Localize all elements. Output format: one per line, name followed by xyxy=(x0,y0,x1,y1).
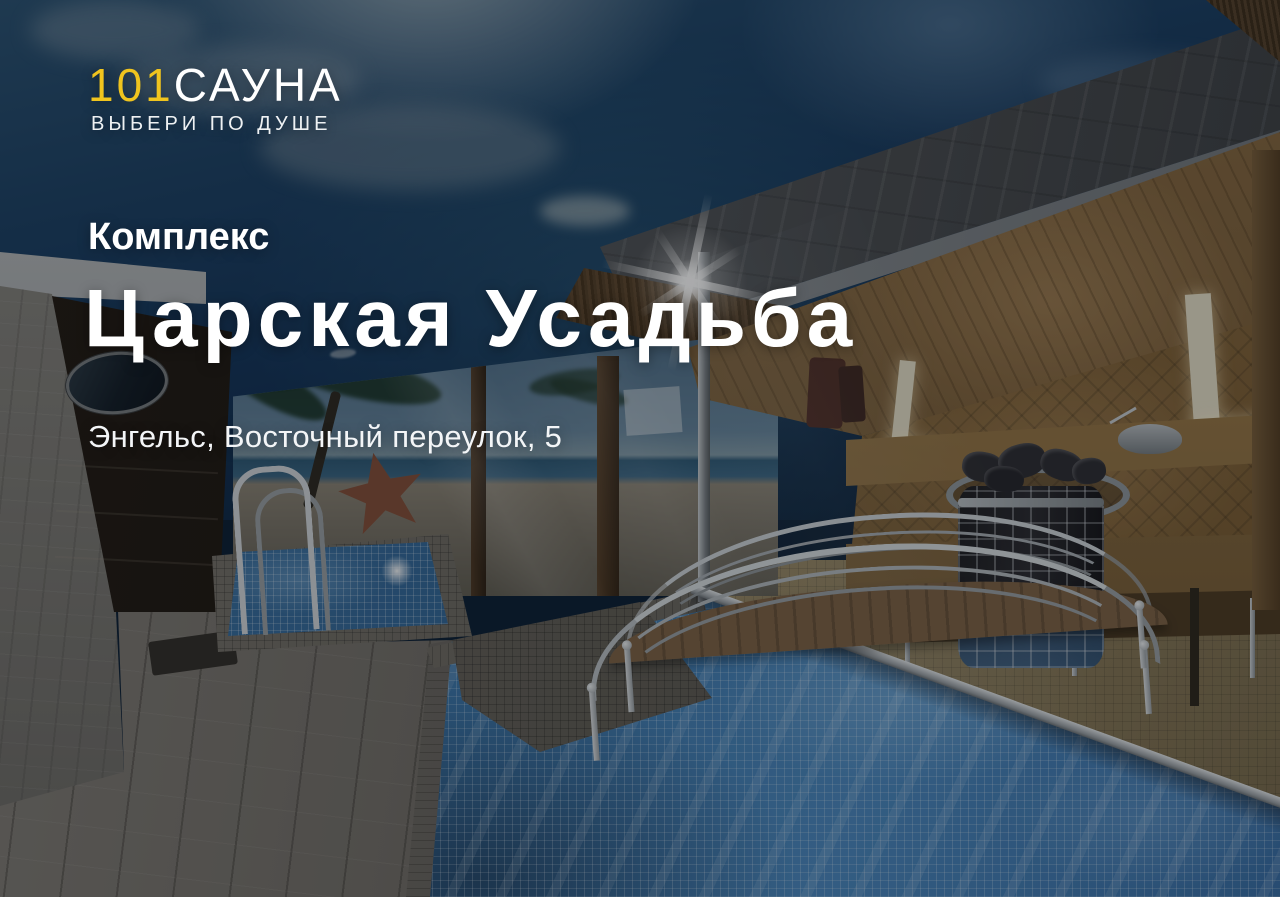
brand-tagline: ВЫБЕРИ ПО ДУШЕ xyxy=(91,113,331,136)
banner-content: 101САУНА ВЫБЕРИ ПО ДУШЕ Комплекс Царская… xyxy=(0,0,1280,897)
address-line: Энгельс, Восточный переулок, 5 xyxy=(88,419,562,455)
sauna-promo-banner: 101САУНА ВЫБЕРИ ПО ДУШЕ Комплекс Царская… xyxy=(0,0,1280,897)
page-title: Царская Усадьба xyxy=(84,272,857,366)
logo-word: САУНА xyxy=(174,59,343,111)
logo-number: 101 xyxy=(88,59,174,111)
brand-logo: 101САУНА xyxy=(88,58,343,112)
category-label: Комплекс xyxy=(88,216,269,259)
